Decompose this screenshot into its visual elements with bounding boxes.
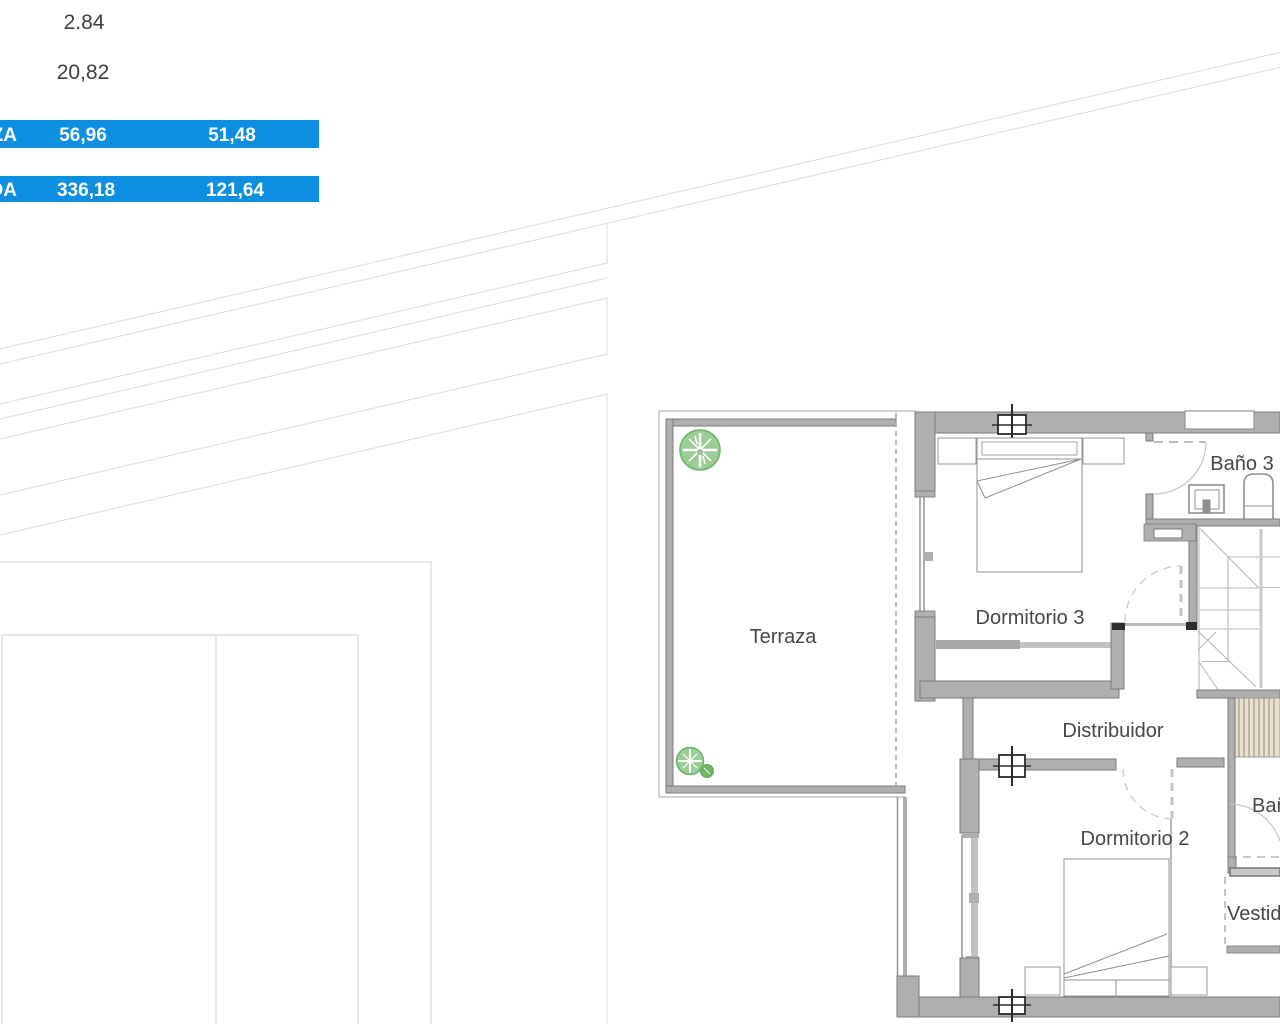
svg-text:DA: DA [0,180,17,201]
svg-text:121,64: 121,64 [206,180,265,201]
svg-text:Dormitorio 2: Dormitorio 2 [1081,828,1190,850]
svg-text:Terraza: Terraza [750,626,818,648]
svg-text:Dormitorio 3: Dormitorio 3 [976,607,1085,629]
svg-text:51,48: 51,48 [208,125,256,146]
svg-text:Baño 3: Baño 3 [1210,453,1273,475]
svg-text:2.84: 2.84 [64,11,105,34]
svg-text:Distribuidor: Distribuidor [1062,720,1163,742]
svg-text:336,18: 336,18 [57,180,115,201]
svg-text:ZA: ZA [0,125,17,146]
svg-text:56,96: 56,96 [59,125,107,146]
svg-text:Baño 2: Baño 2 [1252,795,1280,817]
svg-text:20,82: 20,82 [57,61,110,84]
svg-text:Vestidor: Vestidor [1227,903,1280,925]
